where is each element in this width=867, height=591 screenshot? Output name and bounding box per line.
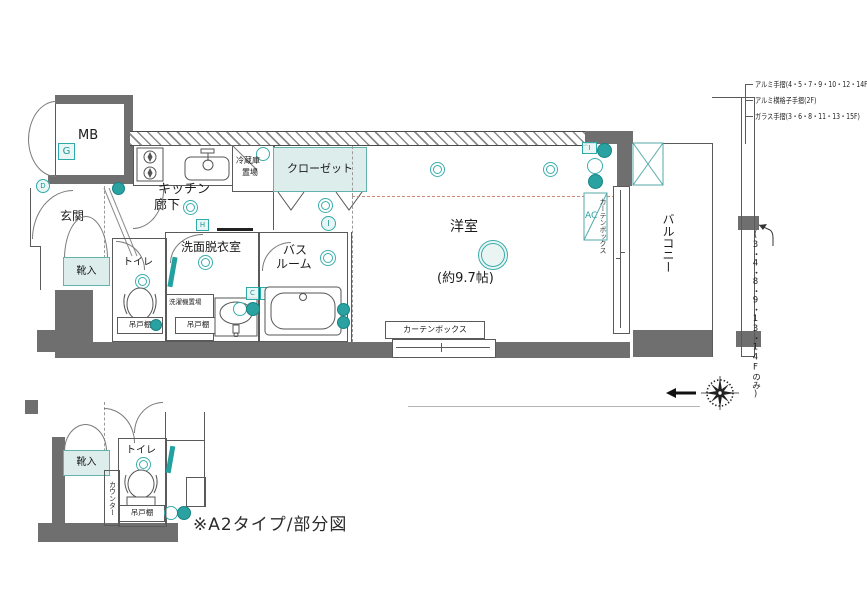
label-fridge-1: 冷蔵庫 <box>236 156 260 165</box>
partial-label-cupboard: 吊戸棚 <box>131 509 154 518</box>
partial-label-shoe-cabinet: 靴入 <box>77 457 97 469</box>
meter-badge-g: G <box>58 143 75 160</box>
room-label-shoe-cabinet: 靴入 <box>77 266 97 278</box>
railing-note-stub-2 <box>745 100 753 101</box>
railing-top-cap <box>741 97 755 98</box>
western-dot-icon-1 <box>597 143 612 158</box>
partial-toilet-icon <box>122 468 160 510</box>
label-curtain-box-right: カーテンボックス <box>599 198 606 294</box>
wall-bottom-left-run <box>55 342 392 358</box>
railing-top-connector <box>712 97 742 98</box>
western-dot-icon-2 <box>588 174 603 189</box>
room-label-closet: クローゼット <box>287 163 353 176</box>
mb-door-arc-top <box>28 101 56 140</box>
label-cupboard-washroom: 吊戸棚 <box>187 321 210 330</box>
sink-icon <box>183 148 231 182</box>
plan-caption: ※A2タイプ/部分図 <box>193 516 347 536</box>
entrance-outer-line-v1 <box>30 188 31 246</box>
wall-top-hatched <box>130 131 588 146</box>
washroom-outlet-ring-icon <box>233 302 247 316</box>
partial-shoe-cabinet-box: 靴入 <box>63 450 110 476</box>
floors-only-note: (3・4・8・9・13・14Fのみ) <box>751 230 760 360</box>
partial-mirror <box>166 446 176 473</box>
wall-mb-top <box>55 95 133 104</box>
washroom-ring-icon <box>198 255 213 270</box>
wall-bottom-left-bump <box>37 330 55 352</box>
mb-door-arc-bottom <box>28 139 56 177</box>
meter-badge-d: D <box>36 179 50 193</box>
washroom-outlet-dot-icon <box>246 302 260 316</box>
partial-label-toilet: トイレ <box>126 445 156 457</box>
wall-balcony-partition <box>617 144 632 186</box>
western-ceiling-ring-2 <box>543 162 558 177</box>
western-badge-i: I <box>582 142 597 154</box>
western-room-dashed-left <box>352 146 354 196</box>
wall-bottom-right-run <box>494 342 630 358</box>
partial-shoe-door-arc-left <box>64 424 86 451</box>
switch-badge-h: H <box>196 219 209 231</box>
divider-line <box>408 406 700 407</box>
room-label-kitchen-1: キッチン <box>158 183 210 198</box>
shoe-cabinet-box: 靴入 <box>63 257 110 286</box>
balcony-inner-right-line <box>712 143 713 357</box>
wall-balcony-bottom-block <box>633 330 713 357</box>
stove-icon <box>136 147 164 182</box>
room-label-balcony: バルコニー <box>662 213 674 305</box>
label-ac: AC <box>585 211 597 221</box>
western-room-dashed-left-lower <box>352 196 354 342</box>
washroom-towel-bar <box>217 228 253 231</box>
railing-note-stub-3 <box>745 116 753 117</box>
western-ring-icon <box>587 158 603 174</box>
corridor-door-arc <box>133 190 164 229</box>
kitchen-light-ring-icon <box>183 200 198 215</box>
closet-ring-icon <box>318 198 333 213</box>
railing-line-inner <box>741 97 742 357</box>
railing-note-stub-1 <box>745 84 753 85</box>
room-label-western-size: (約9.7帖) <box>437 272 494 287</box>
room-label-mb: MB <box>78 129 98 144</box>
railing-note-2: アルミ横格子手摺(2F) <box>755 95 816 106</box>
bathroom-ring-icon <box>320 250 336 266</box>
switch-badge-c: C <box>246 287 259 300</box>
partial-door-arc-2 <box>134 402 163 433</box>
east-window-center-line <box>620 190 621 328</box>
partial-fixture-fragment <box>186 477 206 507</box>
western-center-ring-icon <box>478 240 508 270</box>
label-cupboard-toilet: 吊戸棚 <box>129 321 152 330</box>
railing-note-bracket-spine <box>745 84 746 144</box>
closet-badge-i: I <box>321 216 336 231</box>
floor-plan-canvas: MB G D 玄関 靴入 冷蔵庫 置場 キッチン 廊下 H <box>0 0 867 591</box>
entrance-outer-line-v2 <box>40 246 41 290</box>
partial-fragment-line-h <box>165 440 205 441</box>
curtain-box-bottom: カーテンボックス <box>385 321 485 339</box>
western-room-dashed-pipe-line <box>352 196 615 198</box>
label-curtain-box-bottom: カーテンボックス <box>403 325 467 334</box>
east-window-handle-1 <box>616 258 621 259</box>
balcony-partition-panel <box>632 142 664 186</box>
compass-icon <box>664 372 748 416</box>
bathtub-icon <box>264 286 342 336</box>
partial-label-counter: カウンター <box>109 481 116 516</box>
railing-note-1: アルミ手摺(4・5・7・9・10・12・14F) <box>755 79 867 90</box>
south-window <box>392 339 496 358</box>
south-window-handle <box>441 343 442 352</box>
east-window-handle-2 <box>620 252 625 253</box>
railing-note-3: ガラス手摺(3・6・8・11・13・15F) <box>755 111 860 122</box>
label-fridge-2: 置場 <box>242 168 258 177</box>
partial-dot-icon <box>177 506 191 520</box>
western-ceiling-ring-1 <box>430 162 445 177</box>
bath-dot-icon-2 <box>337 316 350 329</box>
label-washer-space: 洗濯機置場 <box>169 299 202 306</box>
east-sliding-window <box>613 186 630 334</box>
partial-cupboard-box: 吊戸棚 <box>119 505 165 522</box>
toilet-cupboard-dot-icon <box>150 319 162 331</box>
bath-dot-icon-1 <box>337 303 350 316</box>
partial-ring-icon <box>164 506 178 520</box>
partial-wall-top-piece <box>25 400 38 414</box>
room-label-western: 洋室 <box>450 219 478 235</box>
south-window-center-line <box>396 347 490 348</box>
